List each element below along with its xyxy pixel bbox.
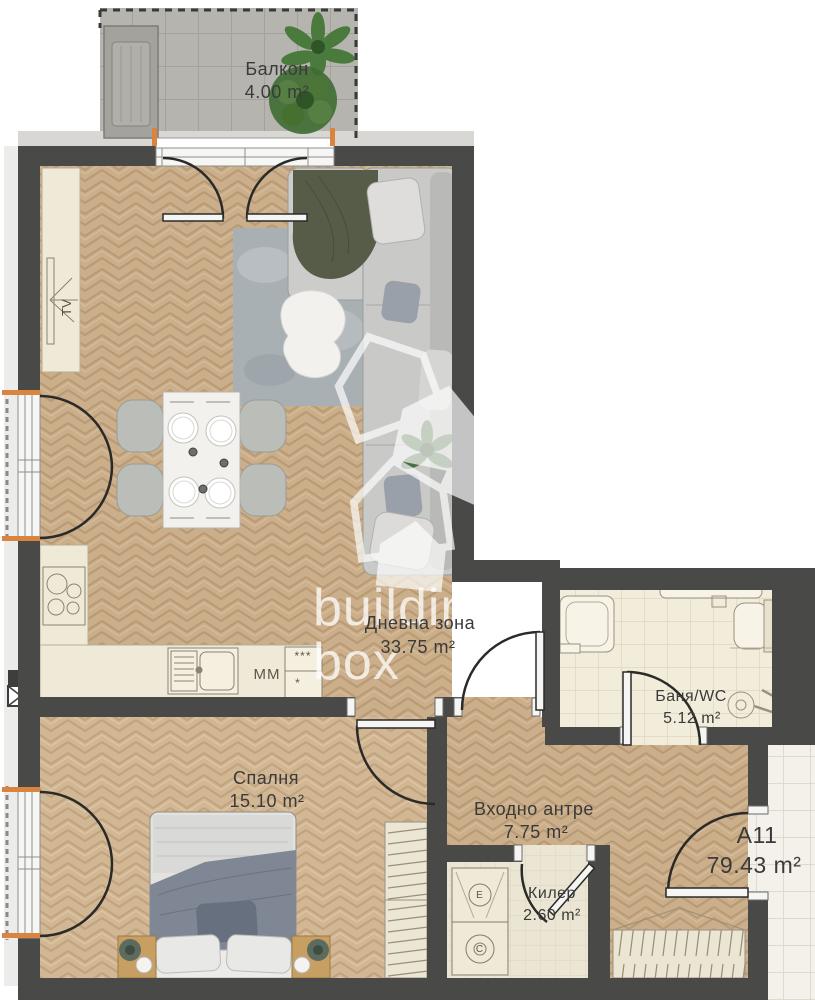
marker [2,787,40,792]
dining-chair [240,464,286,516]
microwave-label: MM [254,666,281,683]
living-area: 33.75 m² [380,637,455,658]
bed [147,812,297,978]
bathroom-doorway-floor [627,727,700,745]
wall [700,727,792,745]
wall [772,568,815,745]
bedroom-area: 15.10 m² [229,791,304,812]
dining-chair [117,464,163,516]
dining-table [163,392,240,528]
tv-unit [42,168,80,372]
storage-doorway-floor [522,845,588,862]
marker [330,128,335,146]
freezer-star: * [295,676,301,690]
toilet [734,603,768,649]
wall [748,745,768,813]
storage-area: 2.60 m² [523,907,581,925]
sofa-pillow-dark [380,280,421,325]
wall [452,146,474,582]
tv-cabinet [42,168,80,372]
bedroom-door-leaf [357,720,435,728]
bedroom-name: Спалня [233,768,299,789]
dryer-label: E [476,890,484,901]
living-hall-door-leaf [536,632,544,710]
bathroom-door-leaf [623,672,631,745]
hall-area: 7.75 m² [504,822,569,843]
tv-label: TV [59,299,74,316]
marker [2,536,40,541]
balcony-door-leaf [247,214,307,221]
sink-tap [560,644,580,653]
bedroom-wardrobe [385,822,427,978]
living-window [18,392,40,540]
marker [2,933,40,938]
bath-area: 5.12 m² [663,710,721,728]
jamb [347,698,355,716]
unit-code: А11 [737,822,778,849]
dining-chair [117,400,163,452]
balcony-name: Балкон [245,59,308,80]
hall-name: Входно антре [474,799,594,820]
wardrobe [613,930,745,978]
washer-label: C [476,944,484,955]
jamb [435,698,443,716]
unit-area: 79.43 m² [707,852,802,879]
wall [447,845,522,862]
jamb [454,698,462,716]
wall [18,540,40,788]
fridge-stars: *** [294,649,311,663]
balcony-area: 4.00 m² [245,82,310,103]
coffee-table [281,291,345,378]
dining-chair [240,400,286,452]
wall [748,893,768,978]
bedroom-window [18,788,40,938]
jamb [514,845,522,861]
living-name: Дневна зона [365,613,475,634]
wall [18,978,768,1000]
jamb [748,806,768,814]
wall [18,697,355,717]
wall [427,717,447,978]
sink-tap [196,667,203,674]
lamp [136,957,152,973]
entrance-door-leaf [666,888,748,897]
bedroom-doorway-floor [355,697,435,717]
bed-pillow [155,934,221,973]
wall [18,146,40,392]
marker [152,128,157,146]
wall [545,727,627,745]
floor-plan-drawing [0,0,815,1000]
jamb [748,892,768,900]
marker [2,390,40,395]
laundry-stack [452,868,508,975]
sofa-pillow [366,177,426,246]
nightstand-left [118,936,156,978]
nightstand-right [292,936,330,978]
kitchen-sink-unit [168,648,238,694]
balcony-door-sill [156,138,334,148]
bed-pillow [226,934,292,973]
hall-doorway-floor [462,697,540,717]
jamb [587,845,595,861]
balcony-door-leaf [163,214,223,221]
lamp [294,957,310,973]
floor-plan: Балкон 4.00 m² Дневна зона 33.75 m² Баня… [0,0,815,1000]
storage-name: Килер [528,885,576,903]
bath-name: Баня/WC [655,688,727,706]
